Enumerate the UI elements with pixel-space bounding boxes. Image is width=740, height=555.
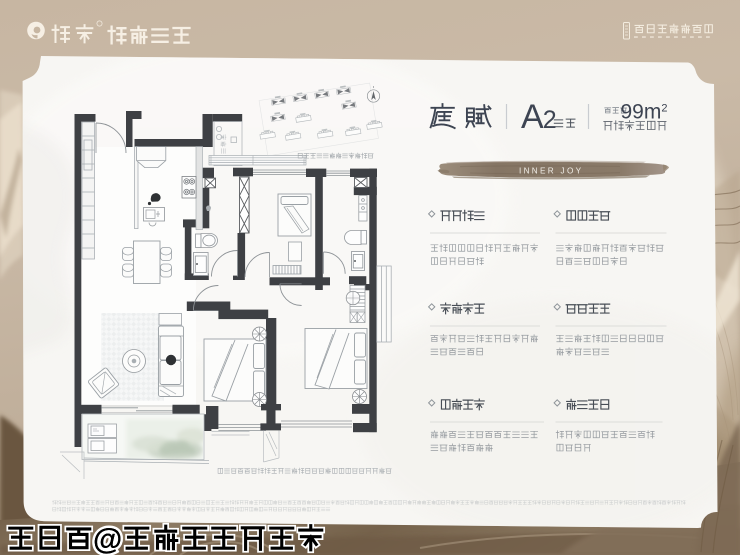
svg-text:INNER JOY: INNER JOY (519, 167, 583, 176)
svg-text:99m2: 99m2 (621, 101, 668, 124)
svg-text:@: @ (93, 523, 122, 555)
